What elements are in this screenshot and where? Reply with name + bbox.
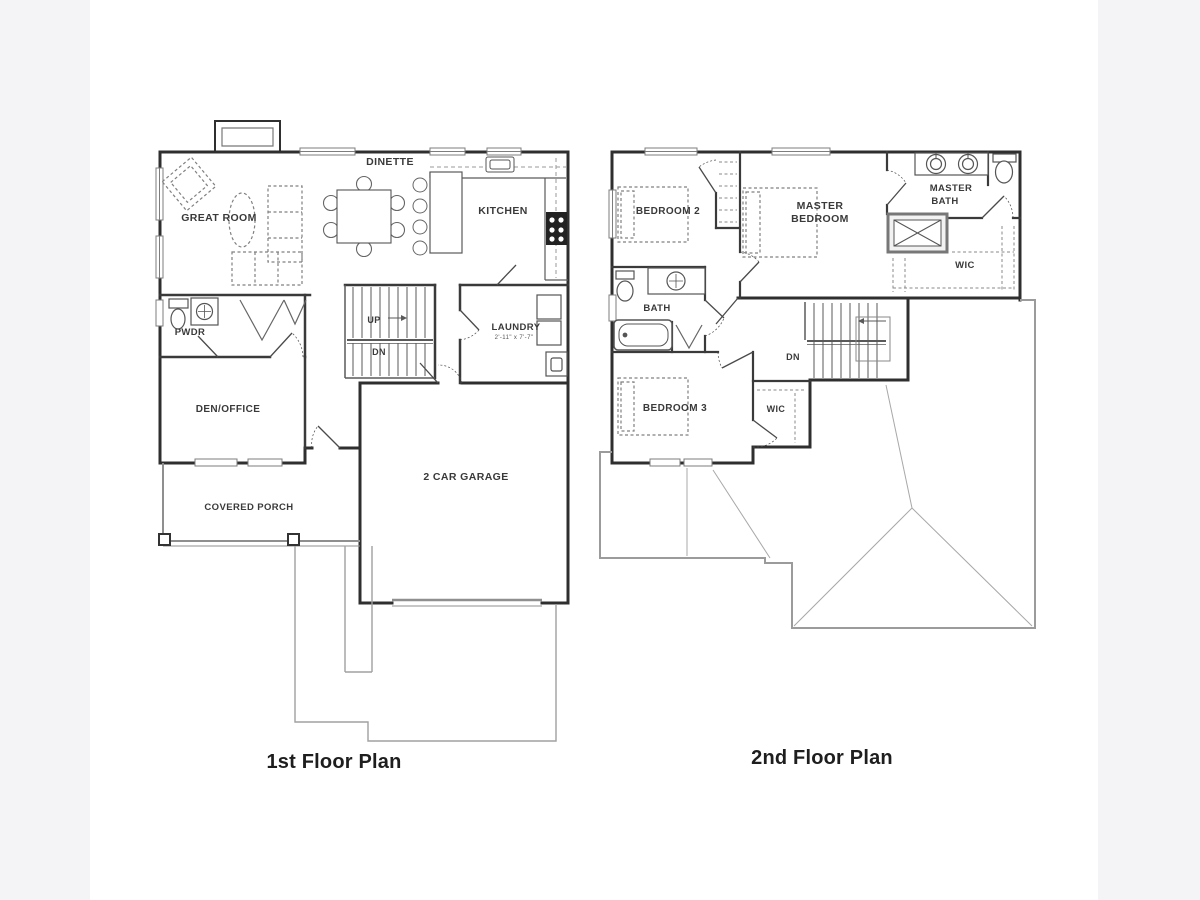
second-floor-caption: 2nd Floor Plan bbox=[751, 747, 893, 769]
dinette-label: DINETTE bbox=[366, 156, 414, 168]
bedroom3-wic-label: WIC bbox=[767, 404, 786, 414]
shower-icon bbox=[888, 214, 947, 252]
dinette-table bbox=[337, 190, 391, 243]
master-wic-label: WIC bbox=[955, 260, 975, 271]
garage-label: 2 CAR GARAGE bbox=[423, 471, 508, 483]
canvas-background bbox=[90, 0, 1098, 900]
window bbox=[156, 236, 163, 278]
window bbox=[156, 168, 163, 220]
up-label: UP bbox=[367, 315, 380, 325]
great-room-label: GREAT ROOM bbox=[181, 212, 257, 224]
porch-post bbox=[288, 534, 299, 545]
den-office-label: DEN/OFFICE bbox=[196, 404, 261, 415]
first-floor-caption: 1st Floor Plan bbox=[266, 751, 401, 773]
window bbox=[650, 459, 680, 466]
sink-icon bbox=[648, 268, 705, 294]
master-bedroom-label2: BEDROOM bbox=[791, 213, 849, 225]
master-bedroom-label1: MASTER bbox=[797, 200, 844, 212]
dryer-icon bbox=[537, 321, 561, 345]
floor-plan-image: GREAT ROOM DINETTE KITCHEN PWDR UP DN LA… bbox=[0, 0, 1200, 900]
dn-label: DN bbox=[786, 352, 800, 362]
stove-icon bbox=[546, 212, 567, 245]
dn-label: DN bbox=[372, 347, 386, 357]
window bbox=[195, 459, 237, 466]
window bbox=[772, 148, 830, 155]
window bbox=[248, 459, 282, 466]
pwdr-label: PWDR bbox=[175, 327, 206, 338]
bath-label: BATH bbox=[643, 303, 670, 314]
kitchen-island bbox=[430, 172, 462, 253]
porch-post bbox=[159, 534, 170, 545]
bathtub-icon bbox=[614, 320, 672, 350]
kitchen-sink-icon bbox=[486, 157, 514, 172]
window bbox=[609, 295, 616, 321]
window bbox=[156, 300, 163, 326]
toilet-icon bbox=[616, 271, 634, 301]
window bbox=[609, 190, 616, 238]
kitchen-label: KITCHEN bbox=[478, 205, 527, 217]
master-bath-label1: MASTER bbox=[930, 183, 973, 194]
window bbox=[684, 459, 712, 466]
laundry-label: LAUNDRY bbox=[492, 322, 541, 333]
window bbox=[645, 148, 697, 155]
master-bath-label2: BATH bbox=[931, 196, 958, 207]
sink-icon bbox=[191, 298, 218, 325]
window bbox=[487, 148, 521, 155]
covered-porch-label: COVERED PORCH bbox=[204, 502, 293, 513]
bedroom2-label: BEDROOM 2 bbox=[636, 206, 700, 217]
laundry-dims: 2'-11" x 7'-7" bbox=[495, 335, 534, 341]
window bbox=[430, 148, 465, 155]
washer-icon bbox=[537, 295, 561, 319]
window bbox=[300, 148, 355, 155]
bedroom3-label: BEDROOM 3 bbox=[643, 403, 707, 414]
